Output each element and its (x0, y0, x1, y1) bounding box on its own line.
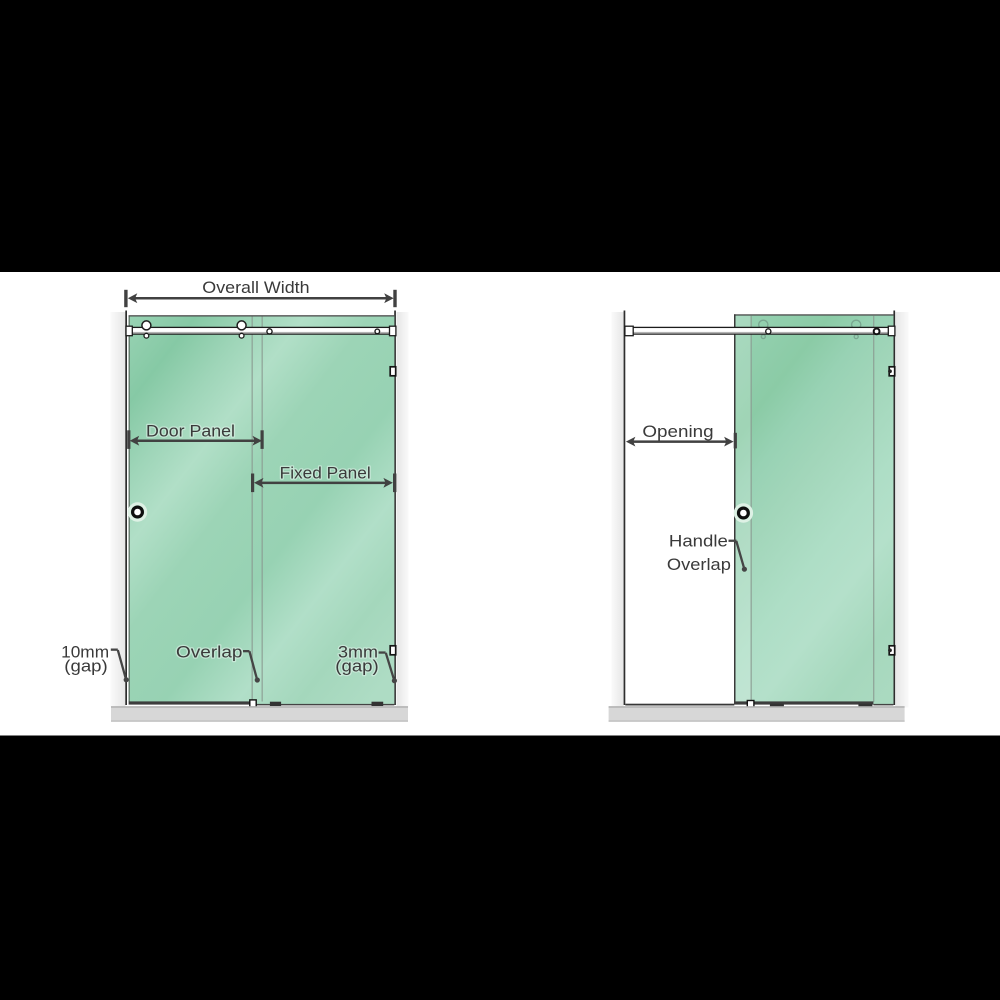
svg-text:Fixed Panel: Fixed Panel (280, 464, 371, 482)
svg-text:Overlap: Overlap (176, 644, 243, 662)
svg-text:Handle: Handle (669, 532, 728, 550)
svg-text:(gap): (gap) (64, 657, 107, 675)
svg-text:Overlap: Overlap (667, 556, 731, 574)
svg-text:Door Panel: Door Panel (146, 422, 235, 440)
svg-text:Overall Width: Overall Width (202, 279, 309, 297)
svg-text:Opening: Opening (642, 423, 713, 441)
svg-text:(gap): (gap) (335, 657, 378, 675)
